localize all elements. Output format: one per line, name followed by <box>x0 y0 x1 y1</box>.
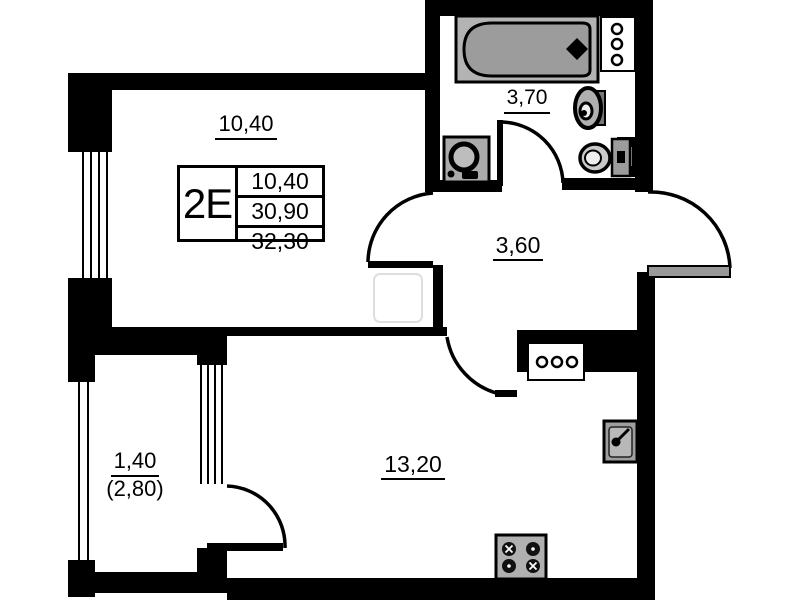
balcony-area-secondary: (2,80) <box>106 476 163 501</box>
window-balcony-partition-line <box>221 365 223 484</box>
wall-room-top <box>68 73 440 90</box>
socket-icon <box>612 39 622 49</box>
door-arc-entrance <box>648 192 730 268</box>
window-balcony-partition-line <box>200 365 202 484</box>
burner-icon <box>526 542 540 556</box>
living-area-label: 13,20 <box>363 452 463 480</box>
wall-right-lower <box>637 272 655 600</box>
hallway-area-value: 3,60 <box>493 233 544 261</box>
room-area-label: 10,40 <box>196 112 296 140</box>
wall-balcony-partition-top <box>197 327 227 365</box>
burner-icon <box>502 559 516 573</box>
fixtures-layer <box>0 0 799 600</box>
legend-area-row-1: 10,40 <box>238 168 322 198</box>
ghost-watermark <box>374 274 422 322</box>
window-balcony-partition-line <box>214 365 216 484</box>
door-leaf-room <box>368 261 433 268</box>
wall-right-upper <box>635 0 653 192</box>
wall-bath-top <box>425 0 653 16</box>
unit-legend-table: 2E 10,40 30,90 32,30 <box>177 165 325 242</box>
wall-bath-bottom-left <box>425 180 502 192</box>
washbasin <box>575 88 605 128</box>
window-balcony-partition-line <box>207 365 209 484</box>
wall-balcony-left-pillar-top <box>68 330 95 382</box>
door-arc-living <box>447 337 500 394</box>
window-balcony-left-line <box>78 380 80 562</box>
wall-bath-left <box>425 0 440 192</box>
unit-type-label: 2E <box>180 168 238 239</box>
window-room-left-line <box>106 152 108 278</box>
wall-main-bottom <box>227 578 655 600</box>
wall-door-stub <box>433 265 443 327</box>
balcony-area-value: 1,40 <box>111 449 160 477</box>
bathtub-drain <box>566 38 588 60</box>
door-leaf-living <box>495 390 517 397</box>
door-leaf-entrance <box>648 266 730 277</box>
window-room-left-line <box>90 152 92 278</box>
hallway-area-label: 3,60 <box>468 233 568 261</box>
burner-icon <box>502 542 516 556</box>
window-room-left-line <box>82 152 84 278</box>
door-leaf-bathroom <box>497 120 503 186</box>
wall-left-pillar-mid <box>68 278 112 332</box>
wall-kitchen-top <box>517 330 655 372</box>
wall-partition-thin <box>225 327 447 336</box>
stove <box>496 535 546 579</box>
bathroom-area-value: 3,70 <box>504 86 551 114</box>
door-arc-balcony <box>227 486 285 548</box>
window-room-left-line <box>98 152 100 278</box>
faucet-icon <box>612 438 621 447</box>
kitchen-sink <box>604 421 637 462</box>
living-area-value: 13,20 <box>381 452 445 480</box>
floor-plan: 10,40 3,70 3,60 13,20 1,40 (2,80) 2E 10,… <box>0 0 799 600</box>
legend-area-row-3: 32,30 <box>238 228 322 255</box>
bathroom-area-label: 3,70 <box>477 86 577 114</box>
balcony-area-label: 1,40 (2,80) <box>85 449 185 501</box>
unit-legend-values: 10,40 30,90 32,30 <box>238 168 322 239</box>
burner-icon <box>526 559 540 573</box>
socket-icon <box>612 24 622 34</box>
wall-balcony-bottom <box>68 572 227 593</box>
legend-area-row-2: 30,90 <box>238 198 322 228</box>
bathtub <box>456 16 598 82</box>
room-area-value: 10,40 <box>215 112 276 140</box>
socket-icon <box>612 55 622 65</box>
door-arc-room <box>368 193 433 262</box>
washing-machine <box>444 137 489 182</box>
door-arc-bathroom <box>502 122 563 183</box>
wall-left-pillar-top <box>68 73 112 155</box>
socket-panel-bathroom <box>601 17 635 71</box>
toilet-niche-panel <box>621 147 632 166</box>
